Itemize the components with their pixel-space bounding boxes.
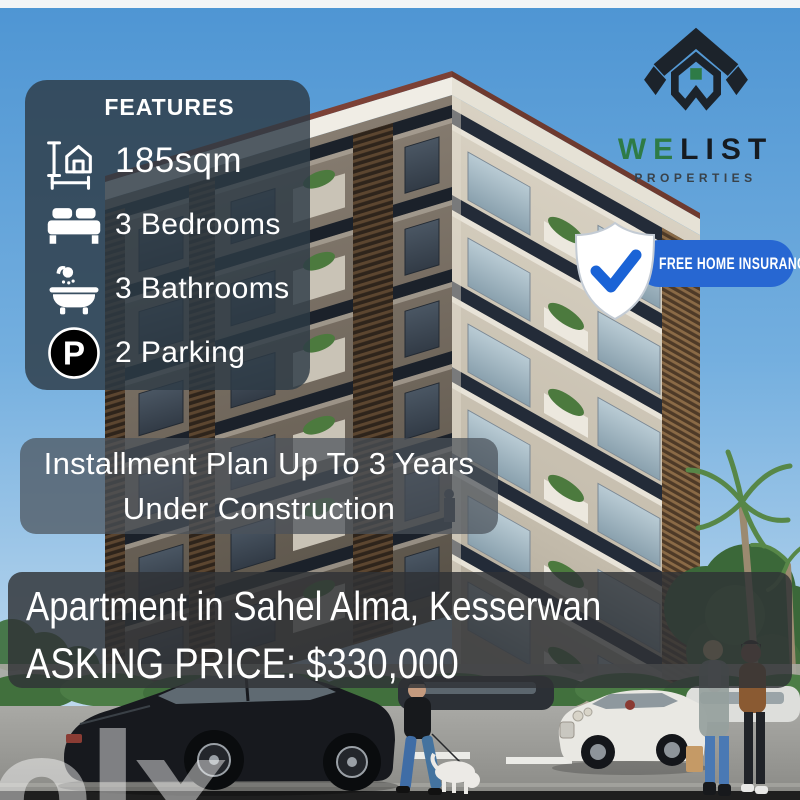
- feature-row-area: 185sqm: [43, 129, 296, 193]
- features-panel: FEATURES 185sqm: [25, 80, 310, 390]
- bath-icon: [43, 262, 105, 316]
- olx-watermark: olx: [0, 716, 223, 800]
- top-border: [0, 0, 800, 8]
- promo-line-2: Under Construction: [123, 486, 395, 531]
- listing-price: ASKING PRICE: $330,000: [26, 640, 677, 689]
- listing-title: Apartment in Sahel Alma, Kesserwan: [26, 583, 677, 630]
- brand-logo: WELIST PROPERTIES: [598, 22, 793, 185]
- brand-tagline: PROPERTIES: [598, 171, 793, 185]
- shield-check-icon: [570, 218, 660, 324]
- feature-bedrooms-label: 3 Bedrooms: [115, 208, 281, 242]
- real-estate-poster: olx FEATURES 185sqm: [0, 0, 800, 800]
- feature-row-bathrooms: 3 Bathrooms: [43, 257, 296, 321]
- bed-icon: [43, 202, 105, 248]
- brand-name-we: WE: [618, 133, 680, 166]
- insurance-label: FREE HOME INSURANCE: [659, 254, 800, 274]
- feature-parking-label: 2 Parking: [115, 336, 245, 370]
- promo-line-1: Installment Plan Up To 3 Years: [44, 441, 475, 486]
- brand-name-list: LIST: [680, 133, 773, 166]
- brand-name: WELIST: [598, 133, 793, 167]
- feature-bathrooms-label: 3 Bathrooms: [115, 272, 289, 306]
- feature-row-parking: P 2 Parking: [43, 321, 296, 385]
- area-icon: [43, 132, 105, 190]
- parking-icon: P: [43, 325, 105, 381]
- listing-band: Apartment in Sahel Alma, Kesserwan ASKIN…: [8, 572, 792, 688]
- feature-area-label: 185sqm: [115, 141, 242, 181]
- feature-row-bedrooms: 3 Bedrooms: [43, 193, 296, 257]
- svg-text:P: P: [63, 335, 85, 372]
- features-title: FEATURES: [43, 94, 296, 121]
- promo-box: Installment Plan Up To 3 Years Under Con…: [20, 438, 498, 534]
- welist-house-icon: [635, 22, 757, 122]
